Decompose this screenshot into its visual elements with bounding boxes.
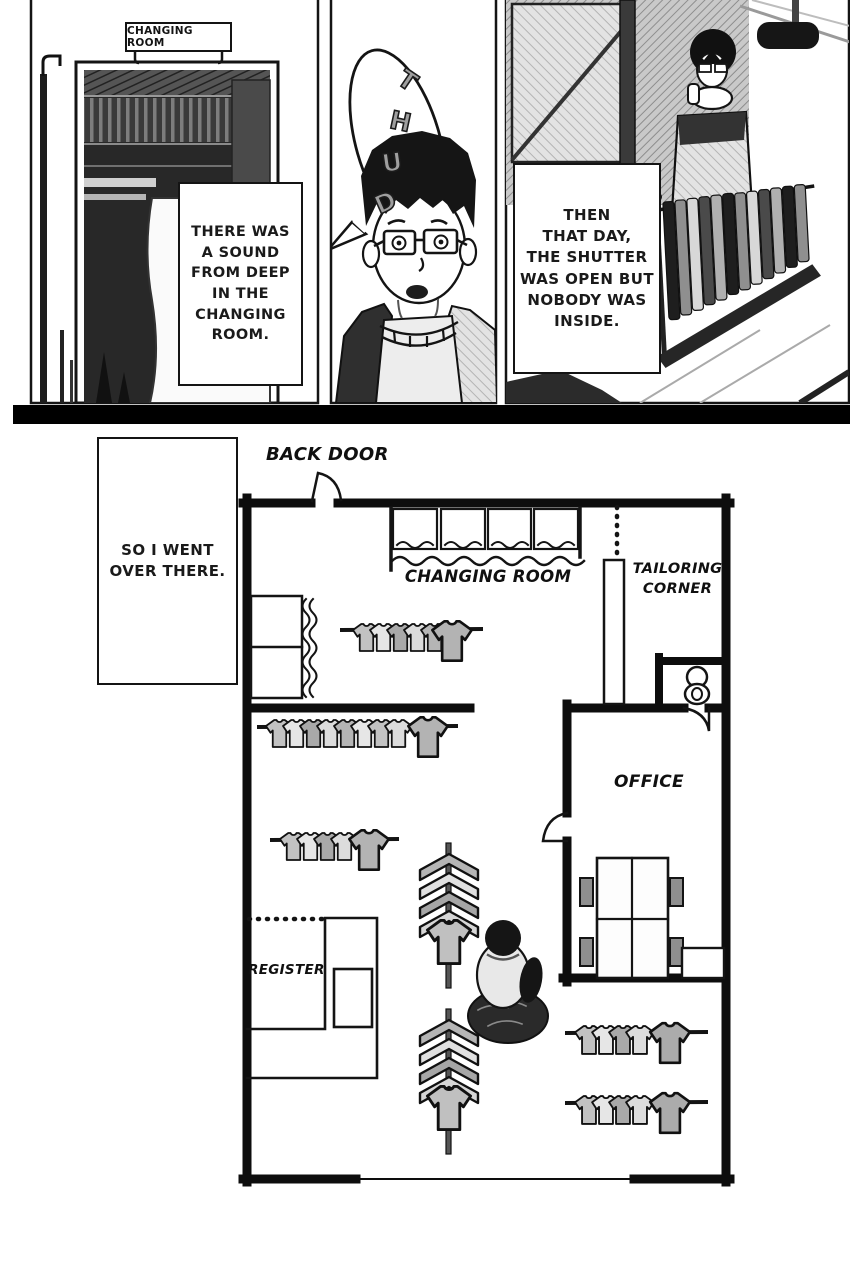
panel-separator-bar [13,405,850,424]
narration-box-went-over: SO I WENT OVER THERE. [97,437,238,685]
clothes-rack-row1 [342,621,481,660]
plan-label-back-door: BACK DOOR [266,444,376,465]
register-counter [247,918,377,1078]
changing-room-stalls [391,508,584,570]
clothes-rack-row3 [272,830,397,869]
pole-rack-upper [420,843,478,988]
plan-label-line: TAILORING [630,560,725,580]
narration-line: FROM DEEP [191,263,290,284]
cash-register [334,969,372,1027]
narration-line: IN THE [212,284,269,305]
narration-line: THERE WAS [191,222,290,243]
pole-rack-lower [420,1009,478,1154]
plan-label-register: REGISTER [248,962,322,978]
narration-line: CHANGING [195,305,286,326]
narration-line: WAS OPEN BUT [520,269,654,290]
panel2-startled-man-scene [328,0,497,403]
plan-label-office: OFFICE [608,772,690,792]
narration-box-sound: THERE WAS A SOUND FROM DEEP IN THE CHANG… [178,182,303,386]
narration-line: THEN [563,205,610,226]
plan-label-tailoring-corner: TAILORING CORNER [630,560,725,599]
office-desk-cluster [580,858,724,978]
toilet-icon [685,667,709,704]
narration-line: THAT DAY, [543,226,632,247]
changing-room-sign-label: CHANGING ROOM [127,25,230,49]
hanging-sign [757,22,819,49]
narration-line: OVER THERE. [110,561,226,582]
plan-label-changing-room: CHANGING ROOM [398,567,578,586]
office-corner-cabinet [682,948,724,978]
narration-line: A SOUND [202,243,280,264]
narration-box-shutter: THEN THAT DAY, THE SHUTTER WAS OPEN BUT … [513,163,661,374]
sfx-letter-u: U [380,147,404,179]
plan-label-line: CORNER [630,580,725,600]
changing-room-sign: CHANGING ROOM [125,22,232,52]
manga-page: CHANGING ROOM THERE WAS A SOUND FROM DEE… [0,0,850,1276]
narration-line: ROOM. [212,325,270,346]
narration-line: NOBODY WAS [527,290,646,311]
curtain-wave [392,557,584,565]
wall-shelf [251,596,317,698]
clothes-rack-row5 [567,1093,706,1133]
tailoring-counter [604,560,624,704]
clothes-rack-row4 [567,1023,706,1063]
narration-line: INSIDE. [554,311,620,332]
narration-line: SO I WENT [121,540,214,561]
narration-line: THE SHUTTER [527,247,648,268]
back-door-swing [312,473,341,501]
clothes-rack-row2 [259,717,456,756]
customer-figure [468,920,548,1043]
